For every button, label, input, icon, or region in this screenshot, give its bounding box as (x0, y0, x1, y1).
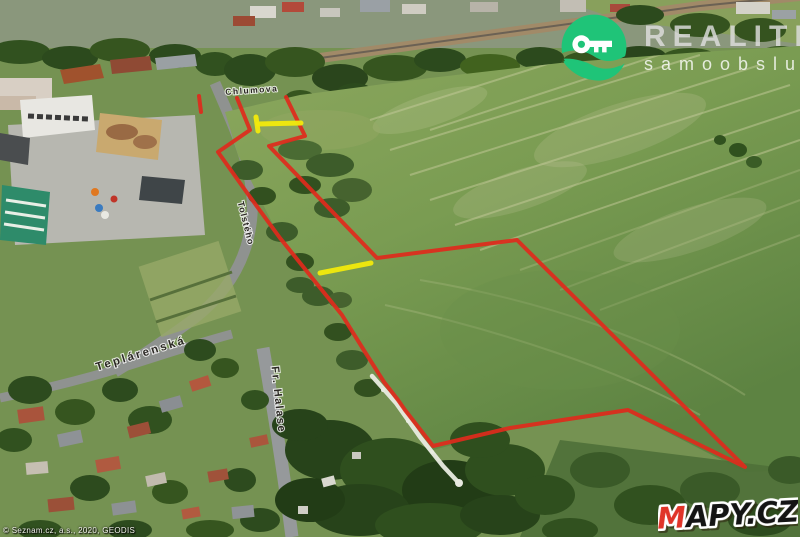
brand-subtitle: samoobsluha (644, 55, 800, 73)
mapycz-rest: APY.CZ (683, 494, 798, 534)
brand-text: REALITNÍ samoobsluha (644, 22, 800, 73)
svg-text:MAPY.CZ: MAPY.CZ (658, 494, 798, 535)
key-hand-logo-icon (558, 11, 630, 83)
brand-name: REALITNÍ (644, 22, 800, 52)
map-attribution: © Seznam.cz, a.s., 2020, GEODIS (3, 526, 135, 535)
aerial-map: ChlumovaTolstéhoTeplárenskáFr. Halase RE… (0, 0, 800, 537)
entrance-marker (258, 123, 301, 124)
parcel-boundary (199, 96, 201, 112)
mapycz-logo: MAPY.CZ (658, 494, 798, 536)
realitni-samoobsluha-logo: REALITNÍ samoobsluha (558, 11, 800, 83)
mapycz-m: M (658, 500, 687, 535)
